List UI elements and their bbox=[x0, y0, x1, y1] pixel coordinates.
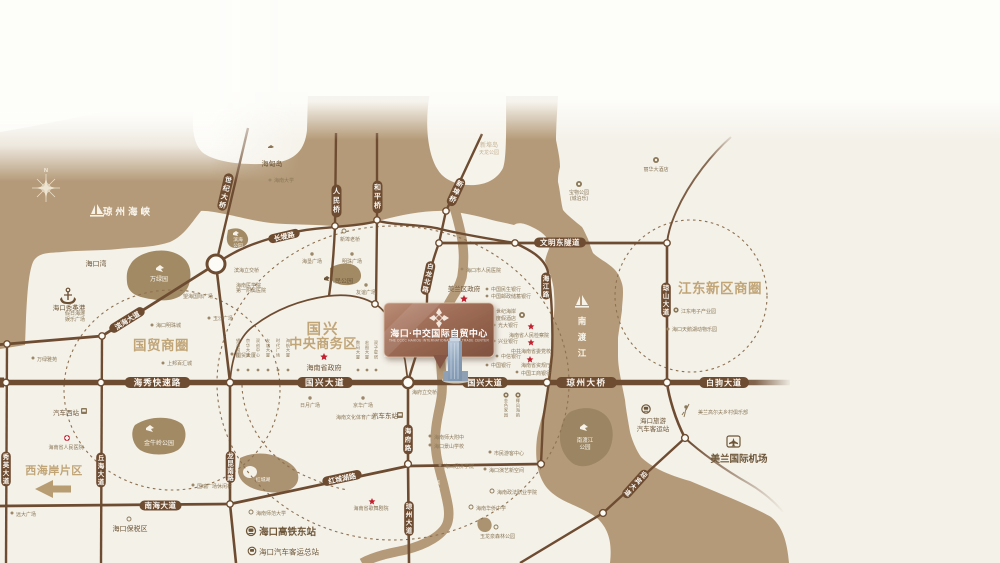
svg-text:海口天鹅湖动物乐园: 海口天鹅湖动物乐园 bbox=[672, 326, 717, 333]
svg-text:海南政法职业学院: 海南政法职业学院 bbox=[497, 489, 537, 496]
svg-text:海南大学: 海南大学 bbox=[274, 177, 294, 184]
svg-text:(城泊乐): (城泊乐) bbox=[570, 195, 589, 202]
svg-text:公园: 公园 bbox=[579, 444, 591, 451]
svg-text:第一附属医院: 第一附属医院 bbox=[236, 287, 266, 294]
svg-text:万绿雅苑: 万绿雅苑 bbox=[37, 356, 57, 363]
svg-text:国瑞广场休闲村: 国瑞广场休闲村 bbox=[197, 483, 232, 490]
svg-text:上邦百汇城: 上邦百汇城 bbox=[167, 360, 192, 367]
svg-text:中国邮政储蓄银行: 中国邮政储蓄银行 bbox=[491, 293, 531, 300]
svg-text:红城湖: 红城湖 bbox=[256, 476, 271, 483]
svg-text:海南省歌舞剧院: 海南省歌舞剧院 bbox=[353, 505, 388, 512]
svg-text:日月广场: 日月广场 bbox=[300, 402, 320, 409]
svg-text:明珠广场: 明珠广场 bbox=[342, 258, 362, 265]
svg-text:海南省资规厅: 海南省资规厅 bbox=[521, 362, 551, 369]
svg-text:海南省人民医院: 海南省人民医院 bbox=[48, 444, 83, 451]
svg-text:美兰国际机场: 美兰国际机场 bbox=[709, 453, 768, 465]
svg-text:海垦广场: 海垦广场 bbox=[302, 258, 322, 265]
svg-text:N: N bbox=[44, 168, 48, 174]
svg-text:滨海立交桥: 滨海立交桥 bbox=[234, 267, 259, 274]
svg-text:龙昆南路: 龙昆南路 bbox=[226, 451, 234, 482]
svg-text:南: 南 bbox=[578, 316, 587, 326]
svg-text:海府立交桥: 海府立交桥 bbox=[412, 389, 437, 396]
svg-text:万绿园: 万绿园 bbox=[150, 275, 168, 283]
svg-text:友谊大厦: 友谊大厦 bbox=[266, 337, 270, 357]
svg-text:丘海大道: 丘海大道 bbox=[98, 453, 105, 486]
svg-text:美兰区政府: 美兰区政府 bbox=[448, 284, 481, 293]
svg-text:秀英大道: 秀英大道 bbox=[2, 452, 10, 485]
svg-text:海南省人民检察院: 海南省人民检察院 bbox=[509, 332, 549, 339]
svg-text:京华大厦: 京华大厦 bbox=[246, 337, 250, 357]
svg-text:假日海滩: 假日海滩 bbox=[65, 310, 85, 317]
svg-text:中国银行: 中国银行 bbox=[491, 362, 511, 369]
svg-text:海南文化体育广场: 海南文化体育广场 bbox=[336, 414, 376, 421]
svg-text:南渡江: 南渡江 bbox=[577, 436, 594, 444]
svg-text:中央商务区: 中央商务区 bbox=[289, 336, 357, 351]
svg-text:美舍河: 美舍河 bbox=[436, 479, 441, 498]
svg-text:公园: 公园 bbox=[233, 243, 243, 249]
svg-text:海口保税区: 海口保税区 bbox=[113, 524, 148, 533]
svg-text:市民游客中心: 市民游客中心 bbox=[494, 450, 524, 457]
svg-text:海口·中交国际自贸中心: 海口·中交国际自贸中心 bbox=[390, 328, 487, 339]
svg-text:滨海: 滨海 bbox=[233, 236, 243, 243]
svg-text:汽车客运站: 汽车客运站 bbox=[637, 424, 670, 433]
svg-text:金牛岭公园: 金牛岭公园 bbox=[144, 439, 174, 447]
svg-text:海府路: 海府路 bbox=[405, 426, 412, 452]
svg-text:海口高铁东站: 海口高铁东站 bbox=[259, 526, 317, 538]
svg-text:玉沙广场: 玉沙广场 bbox=[213, 315, 233, 322]
svg-text:渡: 渡 bbox=[578, 332, 587, 342]
svg-text:世纪海岸: 世纪海岸 bbox=[496, 308, 516, 315]
svg-text:美兰高尔夫乡村俱乐部: 美兰高尔夫乡村俱乐部 bbox=[698, 409, 748, 416]
svg-text:琼山大道: 琼山大道 bbox=[663, 283, 670, 316]
svg-text:度假酒店: 度假酒店 bbox=[496, 315, 516, 322]
svg-text:海江路: 海江路 bbox=[543, 274, 550, 299]
svg-text:海口汽车客运总站: 海口汽车客运总站 bbox=[259, 547, 319, 557]
svg-text:白驹大道: 白驹大道 bbox=[706, 378, 742, 388]
svg-text:远大广场: 远大广场 bbox=[16, 511, 36, 518]
svg-text:THE CCCC HAIKOU INTERNATIONAL: THE CCCC HAIKOU INTERNATIONAL FREE TRADE… bbox=[389, 339, 490, 343]
svg-text:新埠岛: 新埠岛 bbox=[480, 141, 498, 149]
svg-text:江东新区商圈: 江东新区商圈 bbox=[678, 280, 762, 296]
svg-text:宝物公园: 宝物公园 bbox=[569, 189, 589, 196]
svg-text:江东电子产业园: 江东电子产业园 bbox=[681, 308, 716, 315]
svg-text:京华广场: 京华广场 bbox=[353, 402, 373, 409]
svg-text:琼州大道: 琼州大道 bbox=[405, 502, 413, 535]
svg-text:海秀快速路: 海秀快速路 bbox=[134, 378, 182, 388]
svg-text:望海国际广场: 望海国际广场 bbox=[183, 293, 213, 300]
svg-text:友谊广场: 友谊广场 bbox=[356, 289, 376, 296]
svg-text:海口经济学院: 海口经济学院 bbox=[444, 463, 474, 470]
svg-text:海口湾: 海口湾 bbox=[86, 259, 107, 268]
svg-text:琼州大桥: 琼州大桥 bbox=[566, 378, 606, 388]
svg-text:海甸岛: 海甸岛 bbox=[262, 159, 283, 168]
svg-text:西海岸片区: 西海岸片区 bbox=[25, 463, 83, 477]
svg-text:丽华大酒店: 丽华大酒店 bbox=[643, 166, 668, 173]
svg-text:人民公园: 人民公园 bbox=[329, 278, 353, 285]
svg-text:中国工商银行: 中国工商银行 bbox=[521, 370, 551, 377]
svg-text:兴业银行: 兴业银行 bbox=[498, 338, 518, 345]
svg-text:海南师大附中: 海南师大附中 bbox=[434, 434, 464, 441]
svg-text:海南华侨中学: 海南华侨中学 bbox=[476, 505, 506, 512]
svg-text:汽车西站: 汽车西站 bbox=[53, 408, 80, 417]
svg-text:娱乐广场: 娱乐广场 bbox=[65, 316, 85, 323]
svg-text:光大银行: 光大银行 bbox=[498, 322, 518, 329]
svg-text:国贸商圈: 国贸商圈 bbox=[133, 337, 189, 353]
svg-text:和平桥: 和平桥 bbox=[373, 183, 382, 210]
svg-text:海南师范大学: 海南师范大学 bbox=[256, 510, 286, 517]
svg-text:江: 江 bbox=[578, 348, 587, 358]
svg-text:海南省政府: 海南省政府 bbox=[307, 363, 342, 372]
svg-text:新埠老桥: 新埠老桥 bbox=[340, 236, 360, 243]
svg-text:南海大道: 南海大道 bbox=[145, 500, 177, 510]
svg-text:海口市人民医院: 海口市人民医院 bbox=[466, 267, 501, 274]
svg-text:人民桥: 人民桥 bbox=[333, 187, 341, 214]
svg-text:中国民生银行: 中国民生银行 bbox=[491, 286, 521, 293]
svg-text:天龙公园: 天龙公园 bbox=[479, 149, 499, 156]
svg-text:海口景山学校: 海口景山学校 bbox=[434, 443, 464, 450]
svg-text:琼州海峡: 琼州海峡 bbox=[103, 206, 153, 218]
svg-text:文明东隧道: 文明东隧道 bbox=[540, 237, 580, 247]
svg-text:国兴大道: 国兴大道 bbox=[305, 378, 345, 388]
svg-text:海口演艺新空间: 海口演艺新空间 bbox=[489, 467, 524, 474]
svg-text:国兴大道: 国兴大道 bbox=[467, 378, 502, 388]
svg-text:宏图大厦: 宏图大厦 bbox=[365, 339, 369, 359]
svg-text:玉龙泉森林公园: 玉龙泉森林公园 bbox=[480, 533, 515, 540]
svg-text:海口旅游: 海口旅游 bbox=[640, 416, 667, 425]
svg-text:中信银行: 中信银行 bbox=[501, 353, 521, 360]
svg-text:海口明珠城: 海口明珠城 bbox=[156, 322, 181, 329]
